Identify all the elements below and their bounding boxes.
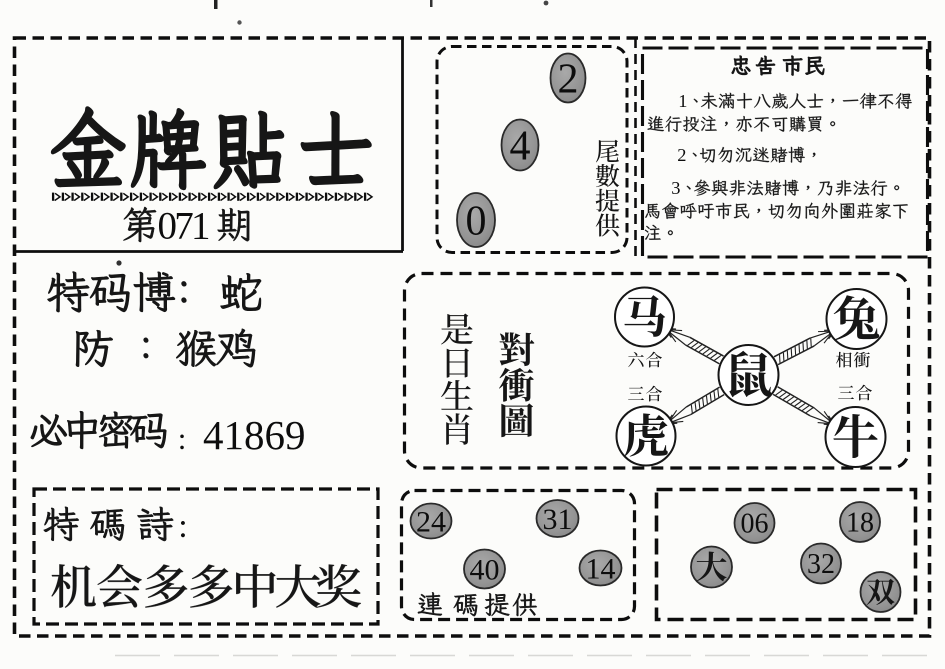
svg-text:4: 4 (510, 123, 531, 169)
svg-text:24: 24 (416, 505, 446, 538)
svg-text:2: 2 (558, 56, 579, 102)
svg-text:14: 14 (586, 552, 616, 585)
svg-text:32: 32 (807, 549, 835, 580)
svg-text:2: 2 (677, 145, 686, 165)
svg-text:31: 31 (543, 503, 573, 536)
svg-text::: : (178, 508, 187, 545)
svg-text:06: 06 (741, 509, 769, 540)
svg-text:0: 0 (466, 198, 487, 244)
svg-text::: : (178, 421, 187, 456)
svg-text:1: 1 (678, 91, 687, 111)
svg-text:18: 18 (846, 508, 874, 539)
svg-text:40: 40 (470, 553, 500, 586)
svg-text:071: 071 (158, 205, 211, 248)
svg-text:41869: 41869 (203, 412, 306, 458)
svg-text:3: 3 (671, 178, 680, 198)
